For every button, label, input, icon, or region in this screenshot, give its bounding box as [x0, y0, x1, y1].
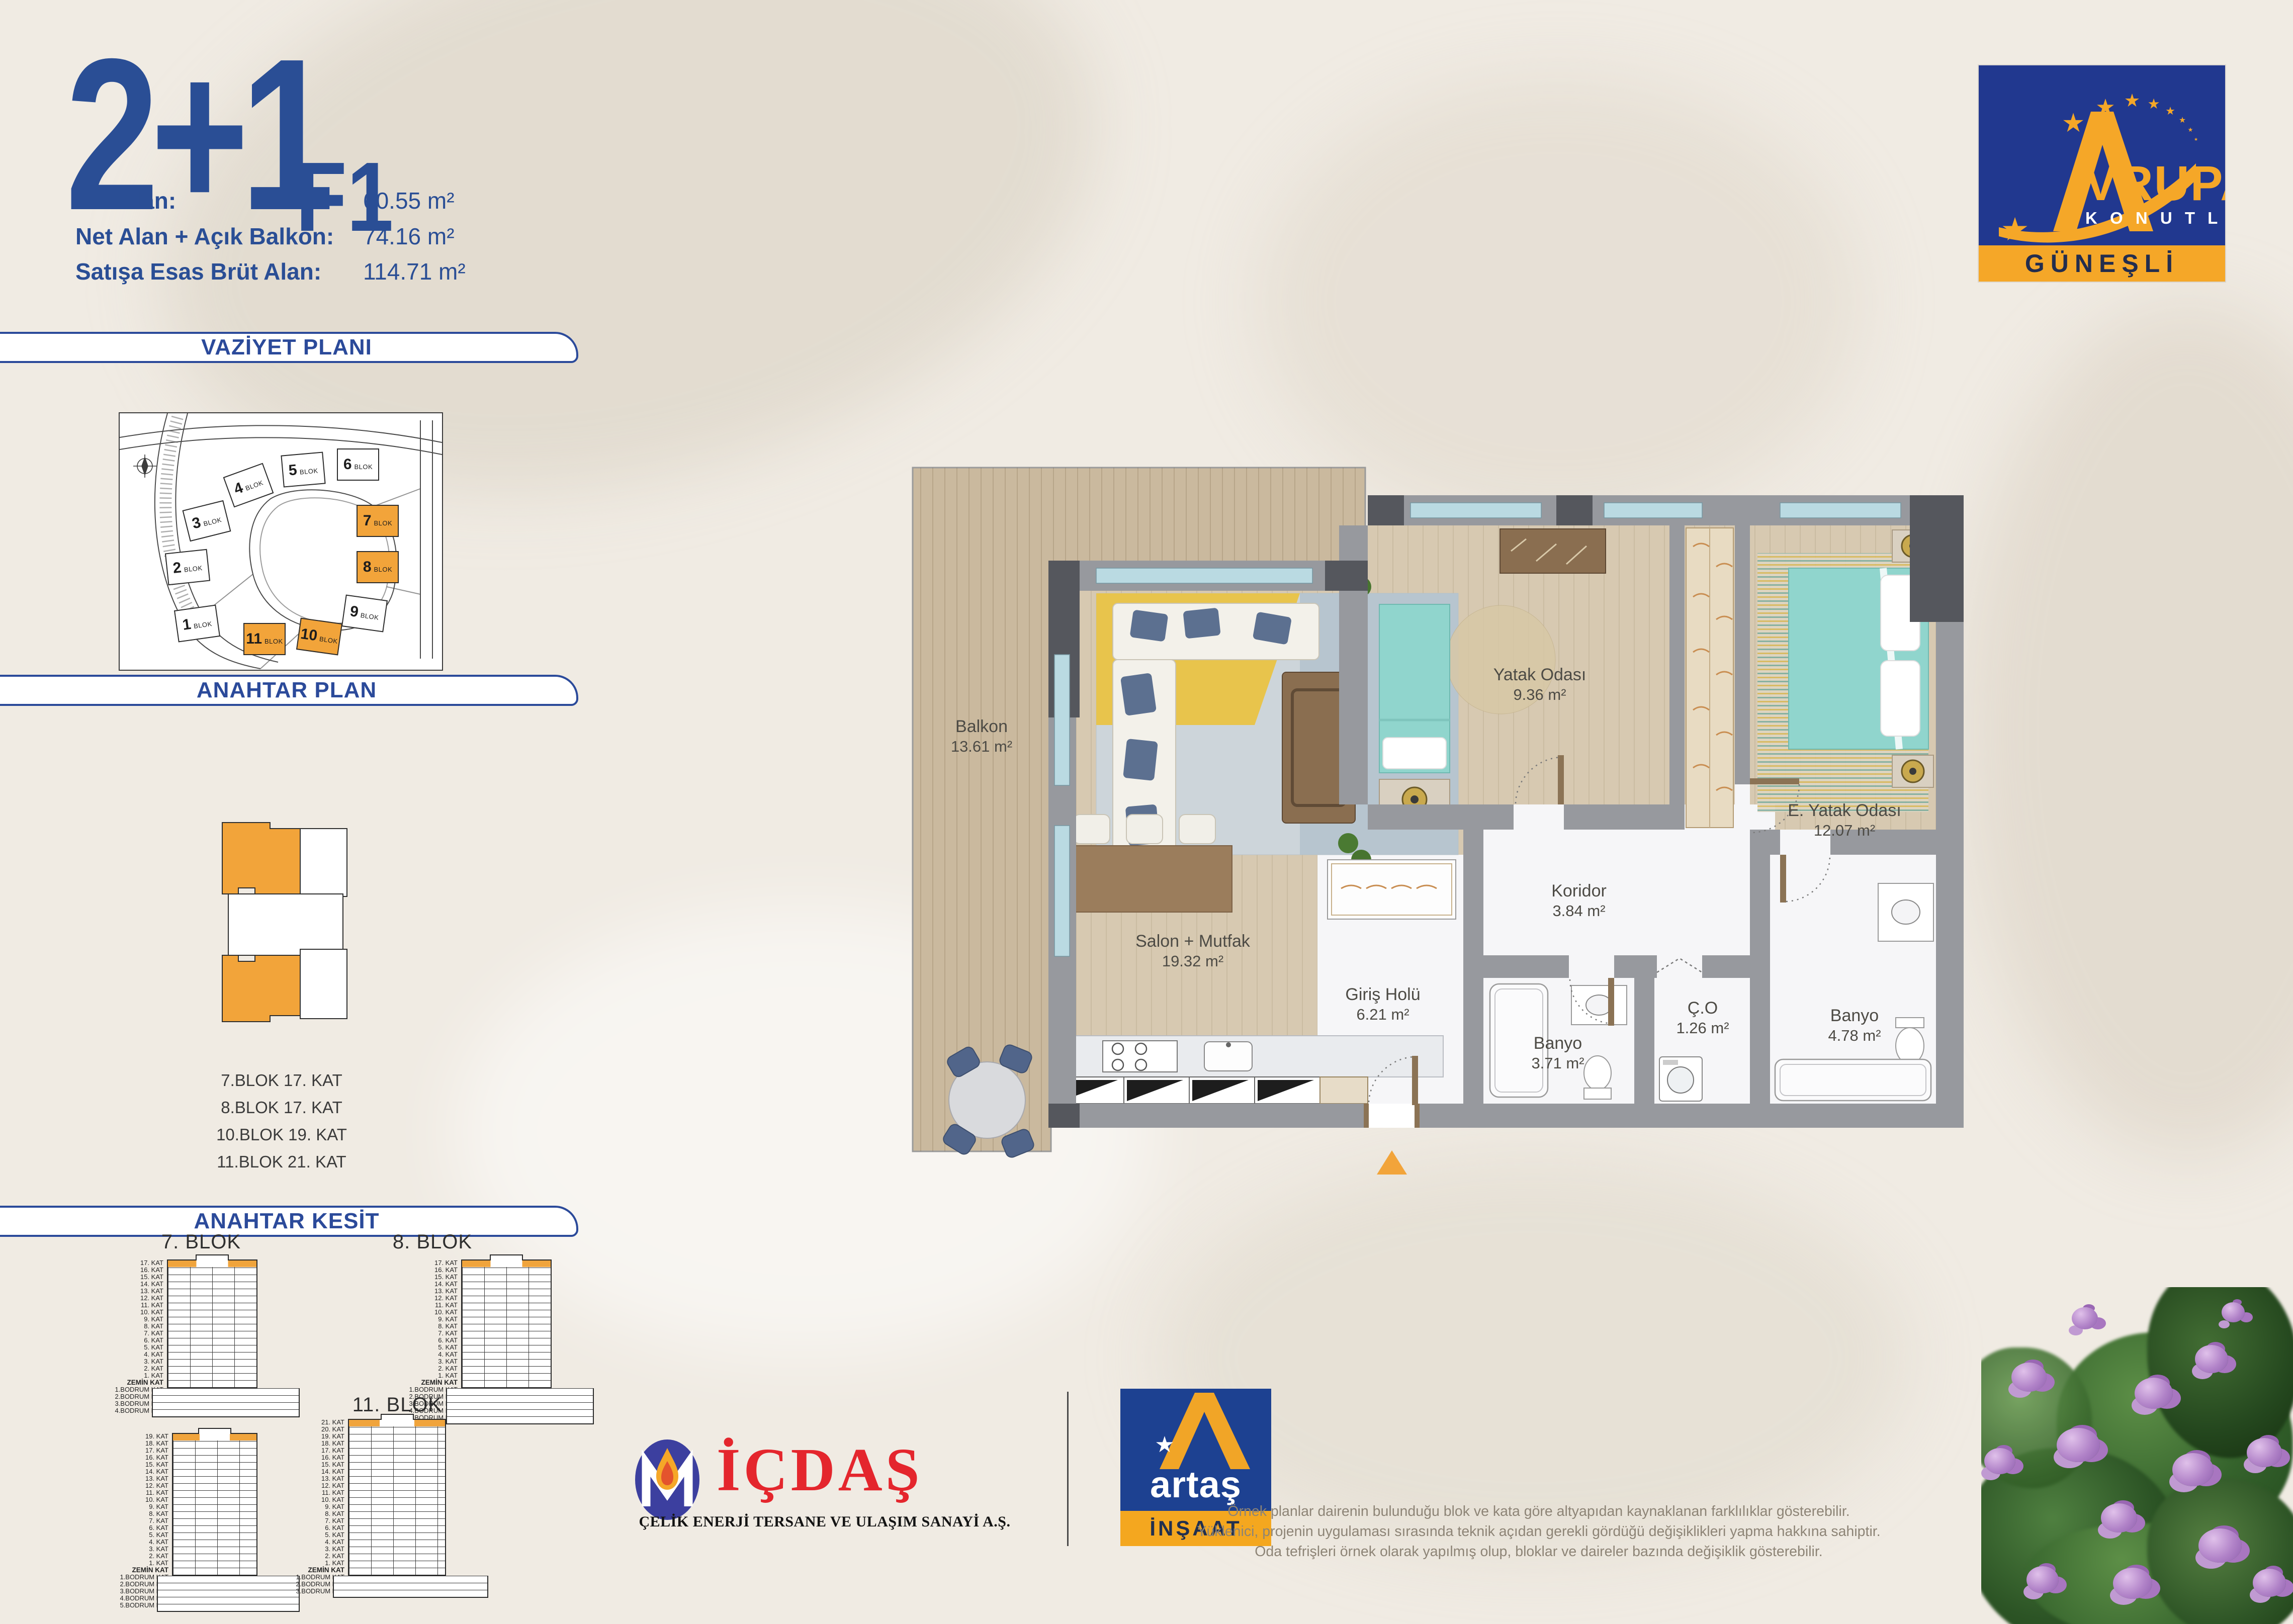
disclaimer-line: Oda tefrişleri örnek olarak yapılmış olu… [1197, 1542, 1881, 1562]
block-label: BLOK [244, 479, 264, 492]
floor-label: 6. KAT [98, 1337, 163, 1344]
room-label-salon-mutfak: Salon + Mutfak 19.32 m² [1135, 931, 1250, 971]
disclaimer-line: Yüklenici, projenin uygulaması sırasında… [1197, 1521, 1881, 1542]
room-label-banyo-2: Banyo 4.78 m² [1828, 1006, 1881, 1046]
block-number: 7 [363, 513, 372, 528]
floor-label: 2. KAT [98, 1365, 163, 1372]
floor-label: 13. KAT [392, 1288, 458, 1295]
tower-graphic [167, 1259, 257, 1417]
key-plan-floor-line: 11.BLOK 21. KAT [146, 1148, 417, 1176]
floor-label: 8. KAT [103, 1510, 168, 1517]
floor-label: 2. KAT [392, 1365, 458, 1372]
block-label: BLOK [319, 635, 338, 645]
svg-text:★: ★ [2124, 91, 2140, 111]
siteplan-block-10-highlighted: 10BLOK [296, 617, 342, 655]
floor-label: 1. KAT [103, 1560, 168, 1567]
floor-label: 11. KAT [392, 1302, 458, 1309]
floor-label: 4. KAT [279, 1539, 344, 1546]
svg-text:★: ★ [2188, 126, 2193, 133]
tower-graphic [461, 1259, 552, 1424]
floor-label: 1. KAT [279, 1560, 344, 1567]
siteplan-block-7-highlighted: 7BLOK [357, 505, 399, 537]
tower-section-8-blok: 17. KAT16. KAT15. KAT14. KAT13. KAT12. K… [392, 1259, 552, 1424]
block-number: 6 [343, 457, 352, 472]
tower-graphic [172, 1433, 257, 1612]
floor-label: 9. KAT [392, 1316, 458, 1323]
tower-title-7-blok: 7. BLOK [161, 1231, 241, 1253]
floor-label: 6. KAT [392, 1337, 458, 1344]
section-header-vaziyet-plani: VAZİYET PLANI [0, 332, 578, 363]
svg-text:★: ★ [2095, 95, 2115, 120]
floor-label: 18. KAT [103, 1440, 168, 1447]
logo-divider [1067, 1392, 1069, 1546]
floor-label: 10. KAT [279, 1496, 344, 1503]
floor-label: 14. KAT [279, 1468, 344, 1475]
stat-value: 60.55 m² [363, 187, 455, 214]
floor-label: 11. KAT [103, 1489, 168, 1496]
floor-label: 10. KAT [103, 1496, 168, 1503]
stat-net-alan: Net Alan: 60.55 m² [75, 187, 568, 215]
block-number: 2 [172, 560, 182, 576]
icdas-emblem-icon [631, 1437, 707, 1522]
block-label: BLOK [360, 611, 379, 621]
siteplan-block-5: 5BLOK [281, 452, 325, 487]
tower-floor-labels: 21. KAT20. KAT19. KAT18. KAT17. KAT16. K… [279, 1419, 348, 1595]
block-number: 5 [288, 463, 298, 478]
floor-label: ZEMİN KAT [98, 1379, 163, 1386]
floor-label: 5. KAT [98, 1344, 163, 1351]
icdas-subtitle: ÇELİK ENERJİ TERSANE VE ULAŞIM SANAYİ A.… [631, 1513, 1018, 1530]
key-plan-diagram [217, 819, 353, 1030]
svg-text:★: ★ [2147, 96, 2160, 112]
floor-label: 16. KAT [392, 1267, 458, 1274]
artas-star-icon: ★ [1155, 1432, 1174, 1458]
floor-label: 5. KAT [103, 1531, 168, 1539]
floor-label: 8. KAT [279, 1510, 344, 1517]
tower-section-7-blok: 17. KAT16. KAT15. KAT14. KAT13. KAT12. K… [98, 1259, 257, 1417]
floor-label: 2. KAT [103, 1553, 168, 1560]
siteplan-block-2: 2BLOK [165, 549, 210, 585]
artas-blue-field: ★ artaş [1120, 1389, 1271, 1511]
floor-label: 11. KAT [98, 1302, 163, 1309]
entry-arrow-icon [1377, 1150, 1407, 1175]
block-label: BLOK [264, 638, 283, 645]
room-label-co: Ç.O 1.26 m² [1676, 998, 1729, 1038]
floor-label: 13. KAT [98, 1288, 163, 1295]
floor-label: ZEMİN KAT [392, 1379, 458, 1386]
avrupa-logo-graphic: ★ ★ ★ ★ ★ ★ ★ ★ ★ VRUPA K O N U T L A R … [1979, 65, 2225, 245]
tower-title-8-blok: 8. BLOK [393, 1231, 472, 1253]
block-number: 4 [232, 480, 245, 497]
floor-label: 3. KAT [103, 1546, 168, 1553]
floor-label: 15. KAT [279, 1461, 344, 1468]
floor-label: 4. KAT [392, 1351, 458, 1358]
floor-label: 8. KAT [392, 1323, 458, 1330]
floor-label: 5. KAT [392, 1344, 458, 1351]
floor-label: 1. KAT [98, 1372, 163, 1379]
room-label-yatak-odasi: Yatak Odası 9.36 m² [1493, 665, 1586, 705]
disclaimer-line: Örnek planlar dairenin bulunduğu blok ve… [1197, 1501, 1881, 1521]
block-number: 8 [363, 560, 372, 575]
floor-label: ZEMİN KAT [103, 1567, 168, 1574]
room-label-balkon: Balkon 13.61 m² [951, 716, 1012, 757]
floor-label: 13. KAT [279, 1475, 344, 1482]
floor-label: 14. KAT [392, 1281, 458, 1288]
siteplan-block-8-highlighted: 8BLOK [357, 551, 399, 583]
site-plan: 1BLOK 2BLOK 3BLOK 4BLOK 5BLOK 6BLOK 7BLO… [119, 412, 443, 671]
tower-graphic [348, 1419, 446, 1598]
block-number: 3 [191, 515, 202, 531]
stat-label: Net Alan: [75, 188, 176, 214]
section-header-anahtar-plan: ANAHTAR PLAN [0, 675, 578, 706]
floor-label: 17. KAT [98, 1259, 163, 1267]
floor-label: 3. KAT [279, 1546, 344, 1553]
svg-text:★: ★ [2194, 137, 2198, 142]
siteplan-block-6: 6BLOK [337, 448, 379, 481]
floor-label: 19. KAT [103, 1433, 168, 1440]
floor-label: 7. KAT [392, 1330, 458, 1337]
block-label: BLOK [374, 519, 393, 527]
stat-brut-alan: Satışa Esas Brüt Alan: 114.71 m² [75, 258, 568, 286]
floor-label: 4. KAT [98, 1351, 163, 1358]
svg-text:★: ★ [2179, 115, 2186, 125]
floor-label: 14. KAT [98, 1281, 163, 1288]
floor-label: 3. KAT [98, 1358, 163, 1365]
block-label: BLOK [193, 620, 212, 630]
svg-text:★: ★ [2165, 105, 2175, 118]
room-label-koridor: Koridor 3.84 m² [1551, 881, 1607, 921]
floor-label: 17. KAT [392, 1259, 458, 1267]
master-bedroom-furniture [1757, 530, 1933, 812]
siteplan-block-9: 9BLOK [341, 594, 388, 632]
block-label: BLOK [184, 564, 203, 574]
room-label-e-yatak-odasi: E. Yatak Odası 12.07 m² [1788, 800, 1901, 841]
floor-label: 21. KAT [279, 1419, 344, 1426]
floor-label: 15. KAT [103, 1461, 168, 1468]
floor-label: 19. KAT [279, 1433, 344, 1440]
block-label: BLOK [299, 467, 318, 476]
floor-label: 6. KAT [103, 1524, 168, 1531]
disclaimer-text: Örnek planlar dairenin bulunduğu blok ve… [1197, 1501, 1881, 1562]
floor-label: 16. KAT [279, 1454, 344, 1461]
floor-label: 1. KAT [392, 1372, 458, 1379]
brochure-page: 2+1 F1 Net Alan: 60.55 m² Net Alan + Açı… [0, 0, 2293, 1624]
stat-value: 74.16 m² [363, 223, 455, 250]
block-number: 11 [246, 631, 262, 647]
block-number: 9 [349, 604, 360, 620]
block-label: BLOK [374, 566, 393, 573]
logo-location-band: GÜNEŞLİ [1979, 245, 2225, 282]
section-header-anahtar-kesit: ANAHTAR KESİT [0, 1206, 578, 1237]
key-plan-floor-line: 8.BLOK 17. KAT [146, 1094, 417, 1121]
floor-label: 17. KAT [103, 1447, 168, 1454]
floor-label: 9. KAT [103, 1503, 168, 1510]
floor-label: 8. KAT [98, 1323, 163, 1330]
logo-konutlari-text: K O N U T L A R I [2085, 209, 2225, 227]
floor-label: 17. KAT [279, 1447, 344, 1454]
block-label: BLOK [355, 463, 373, 471]
block-number: 10 [300, 626, 318, 644]
key-plan-floor-line: 10.BLOK 19. KAT [146, 1121, 417, 1148]
floor-label: 16. KAT [103, 1454, 168, 1461]
floor-label: 5. KAT [279, 1531, 344, 1539]
floor-label: 6. KAT [279, 1524, 344, 1531]
floor-label: 12. KAT [98, 1295, 163, 1302]
floor-label: 9. KAT [279, 1503, 344, 1510]
block-number: 1 [182, 617, 192, 633]
tower-section-10-blok: 19. KAT18. KAT17. KAT16. KAT15. KAT14. K… [103, 1433, 257, 1612]
floor-label: 4. KAT [103, 1539, 168, 1546]
floor-label: 18. KAT [279, 1440, 344, 1447]
room-label-banyo-1: Banyo 3.71 m² [1531, 1033, 1584, 1073]
floor-label: 12. KAT [103, 1482, 168, 1489]
artas-a-logo [1160, 1393, 1250, 1469]
svg-text:★: ★ [2062, 108, 2085, 138]
floor-label: 11. KAT [279, 1489, 344, 1496]
paper-texture [1961, 302, 2293, 1156]
artas-name: artaş [1120, 1463, 1271, 1506]
floor-label: 7. KAT [98, 1330, 163, 1337]
block-label: BLOK [203, 516, 222, 527]
floor-label: 20. KAT [279, 1426, 344, 1433]
wardrobe [1686, 528, 1733, 828]
svg-text:★: ★ [2000, 211, 2029, 245]
stat-label: Satışa Esas Brüt Alan: [75, 258, 321, 285]
logo-blue-field: ★ ★ ★ ★ ★ ★ ★ ★ ★ VRUPA K O N U T L A R … [1979, 65, 2225, 245]
floor-label: 9. KAT [98, 1316, 163, 1323]
stat-value: 114.71 m² [363, 258, 466, 285]
key-plan-floor-line: 7.BLOK 17. KAT [146, 1067, 417, 1094]
key-plan-floor-list: 7.BLOK 17. KAT8.BLOK 17. KAT10.BLOK 19. … [146, 1067, 417, 1176]
stat-label: Net Alan + Açık Balkon: [75, 223, 334, 249]
compass-icon [133, 455, 156, 478]
logo-vrupa-text: VRUPA [2084, 156, 2225, 211]
floor-label: 10. KAT [392, 1309, 458, 1316]
siteplan-block-1: 1BLOK [174, 604, 220, 642]
floor-label: 7. KAT [103, 1517, 168, 1524]
floor-label: ZEMİN KAT [279, 1567, 344, 1574]
floor-label: 12. KAT [279, 1482, 344, 1489]
tower-section-11-blok: 21. KAT20. KAT19. KAT18. KAT17. KAT16. K… [279, 1419, 446, 1598]
floor-label: 15. KAT [392, 1274, 458, 1281]
icdas-name: İÇDAŞ [717, 1435, 923, 1505]
avrupa-konutlari-logo: ★ ★ ★ ★ ★ ★ ★ ★ ★ VRUPA K O N U T L A R … [1979, 65, 2225, 282]
room-label-giris-holu: Giriş Holü 6.21 m² [1345, 984, 1420, 1025]
floor-label: 16. KAT [98, 1267, 163, 1274]
floor-label: 14. KAT [103, 1468, 168, 1475]
floor-label: 10. KAT [98, 1309, 163, 1316]
icdas-logo: İÇDAŞ ÇELİK ENERJİ TERSANE VE ULAŞIM SAN… [631, 1437, 1013, 1548]
floor-label: 12. KAT [392, 1295, 458, 1302]
floor-label: 3. KAT [392, 1358, 458, 1365]
flower-photo [1981, 1287, 2293, 1624]
floor-label: 13. KAT [103, 1475, 168, 1482]
floor-label: 2. KAT [279, 1553, 344, 1560]
floor-label: 7. KAT [279, 1517, 344, 1524]
siteplan-block-11-highlighted: 11BLOK [243, 623, 286, 655]
stat-net-alan-balkon: Net Alan + Açık Balkon: 74.16 m² [75, 223, 568, 251]
floor-label: 15. KAT [98, 1274, 163, 1281]
